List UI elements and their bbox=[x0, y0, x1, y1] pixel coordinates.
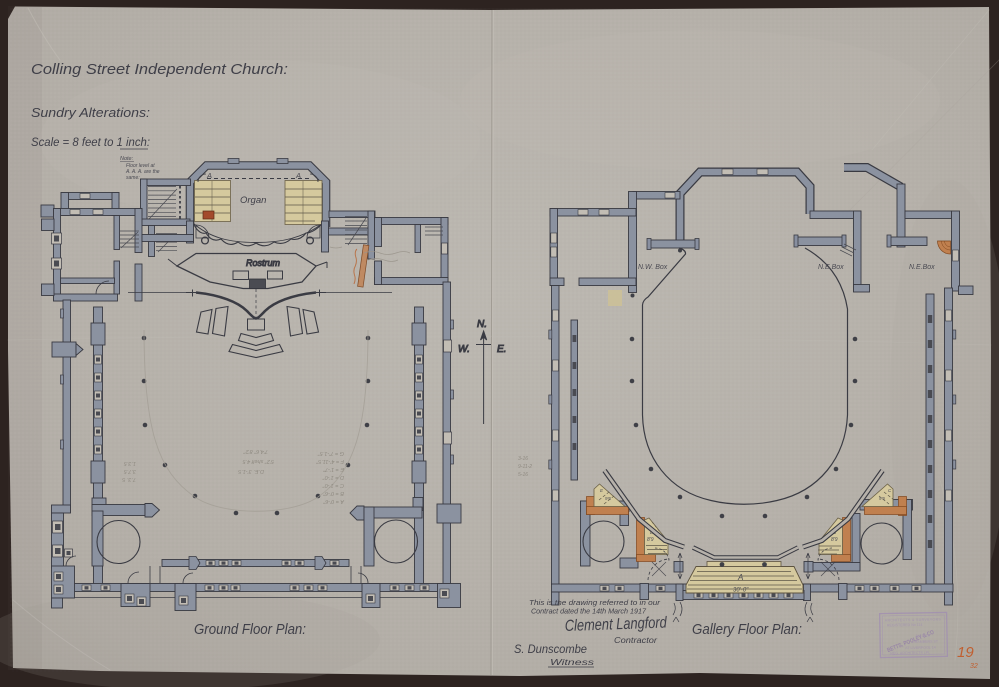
svg-text:E = 1'-7": E = 1'-7" bbox=[322, 466, 344, 472]
svg-text:1.3.5: 1.3.5 bbox=[123, 460, 136, 466]
svg-text:Ground Floor Plan:: Ground Floor Plan: bbox=[194, 622, 306, 638]
svg-text:Contractor: Contractor bbox=[614, 636, 657, 645]
svg-text:same:: same: bbox=[126, 175, 140, 181]
svg-text:Rostrum: Rostrum bbox=[246, 258, 281, 268]
svg-text:No 1914: No 1914 bbox=[916, 634, 930, 638]
svg-text:W.: W. bbox=[458, 344, 470, 355]
svg-text:N.E.Box: N.E.Box bbox=[818, 264, 844, 271]
svg-text:G = 7'-1.5": G = 7'-1.5" bbox=[317, 450, 344, 456]
svg-text:5-16: 5-16 bbox=[518, 472, 528, 478]
svg-text:Contract dated the 14th March: Contract dated the 14th March 1917 bbox=[531, 609, 647, 616]
svg-text:CHAMBERS ST: CHAMBERS ST bbox=[912, 640, 939, 644]
svg-text:7.3. 5: 7.3. 5 bbox=[121, 476, 136, 482]
svg-text:E.: E. bbox=[497, 344, 506, 355]
svg-text:D = 1'-0": D = 1'-0" bbox=[322, 474, 344, 480]
svg-text:N.: N. bbox=[477, 319, 487, 330]
svg-text:3.7.5: 3.7.5 bbox=[123, 468, 136, 474]
svg-text:S. Dunscombe: S. Dunscombe bbox=[514, 642, 587, 656]
svg-text:This is the drawing referred t: This is the drawing referred to in our bbox=[529, 600, 661, 607]
svg-text:32: 32 bbox=[970, 663, 978, 670]
svg-text:3-16: 3-16 bbox=[518, 456, 528, 462]
svg-text:REGISTERED No 114: REGISTERED No 114 bbox=[887, 623, 923, 628]
svg-text:D.E. 3'-1.5: D.E. 3'-1.5 bbox=[237, 468, 264, 474]
svg-text:Scale = 8 feet to 1 inch:: Scale = 8 feet to 1 inch: bbox=[31, 137, 150, 149]
svg-text:8'9: 8'9 bbox=[647, 537, 654, 543]
svg-text:A = 0'-6": A = 0'-6" bbox=[322, 498, 345, 504]
svg-text:Clement Langford: Clement Langford bbox=[565, 614, 668, 635]
svg-text:A: A bbox=[206, 171, 212, 180]
svg-text:REG. ARCHITECTS LPL: REG. ARCHITECTS LPL bbox=[890, 651, 930, 656]
svg-text:9'6: 9'6 bbox=[605, 496, 611, 501]
svg-text:Gallery Floor Plan:: Gallery Floor Plan: bbox=[692, 622, 802, 638]
svg-text:5'2" shelf 4.5: 5'2" shelf 4.5 bbox=[242, 458, 274, 464]
svg-text:N.E.Box: N.E.Box bbox=[909, 264, 935, 271]
svg-text:7'4.6" 8'2": 7'4.6" 8'2" bbox=[243, 448, 268, 454]
svg-text:AT LIVERPOOL 14: AT LIVERPOOL 14 bbox=[905, 646, 936, 651]
svg-text:19: 19 bbox=[957, 644, 974, 661]
svg-text:9-11-2: 9-11-2 bbox=[518, 464, 532, 470]
svg-text:Note:: Note: bbox=[120, 156, 134, 162]
svg-text:30'·0": 30'·0" bbox=[733, 588, 749, 594]
svg-text:9'6: 9'6 bbox=[879, 496, 885, 501]
svg-text:A: A bbox=[737, 573, 743, 582]
svg-text:B = 0'-6": B = 0'-6" bbox=[322, 490, 344, 496]
svg-text:Organ: Organ bbox=[240, 195, 266, 206]
svg-text:8'9: 8'9 bbox=[831, 537, 838, 543]
svg-text:N.W. Box: N.W. Box bbox=[638, 264, 668, 271]
svg-text:A: A bbox=[295, 171, 301, 180]
svg-text:Sundry Alterations:: Sundry Alterations: bbox=[31, 105, 150, 120]
svg-text:F = 4'-11.5": F = 4'-11.5" bbox=[315, 458, 344, 464]
svg-text:Colling Street Independent Chu: Colling Street Independent Church: bbox=[31, 61, 288, 78]
svg-text:C = 1'-0": C = 1'-0" bbox=[322, 482, 344, 488]
svg-text:Witness: Witness bbox=[550, 658, 594, 667]
